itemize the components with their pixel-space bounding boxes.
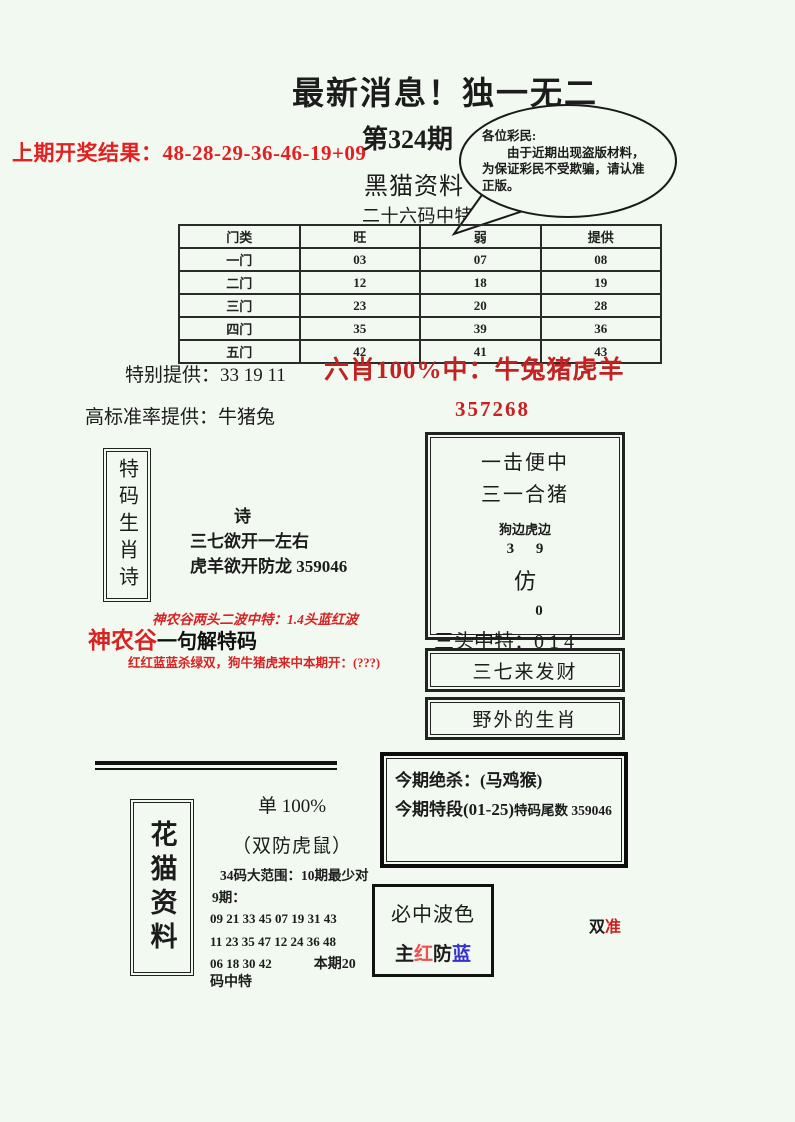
- table-cell: 39: [420, 317, 541, 340]
- segment-tail-numbers: 特码尾数 359046: [514, 803, 612, 818]
- range-note: 34码大范围：10期最少对: [220, 864, 369, 884]
- table-cell: 一门: [179, 248, 300, 271]
- fortune-box: 三七来发财: [425, 648, 625, 692]
- wild-zodiac-box: 野外的生肖: [425, 697, 625, 740]
- flyer-page: 最新消息！独一无二 上期开奖结果：48-28-29-36-46-19+09 第3…: [0, 0, 795, 1122]
- issue-number: 第324期: [362, 119, 453, 156]
- table-cell: 19: [541, 271, 662, 294]
- kill-tip-box: 今期绝杀：(马鸡猴) 今期特段(01-25)特码尾数 359046: [380, 752, 628, 868]
- kill-tip-box-inner: 今期绝杀：(马鸡猴) 今期特段(01-25)特码尾数 359046: [386, 758, 622, 862]
- table-cell: 23: [300, 294, 421, 317]
- zhongte-note: 码中特: [210, 971, 252, 991]
- hit-line-5: 仿: [514, 564, 536, 596]
- accuracy-stamp: 双准: [589, 913, 621, 937]
- table-cell: 36: [541, 317, 662, 340]
- table-cell: 18: [420, 271, 541, 294]
- table-header-cell: 提供: [541, 225, 662, 248]
- table-header-row: 门类 旺 弱 提供: [179, 225, 661, 248]
- table-cell: 12: [300, 271, 421, 294]
- poem-heading: 诗: [190, 504, 347, 529]
- one-hit-box: 一击便中 三一合猪 狗边虎边 3 9 仿 0 三头中特：0 1 4: [425, 432, 625, 640]
- table-row: 四门 35 39 36: [179, 317, 661, 340]
- table-header-cell: 门类: [179, 225, 300, 248]
- notice-body: 由于近期出现盗版材料，为保证彩民不受欺骗，请认准正版。: [482, 145, 650, 195]
- hit-line-3: 狗边虎边: [499, 519, 551, 538]
- hit-line-1: 一击便中: [481, 446, 569, 475]
- table-cell: 四门: [179, 317, 300, 340]
- segment-line: 今期特段(01-25)特码尾数 359046: [395, 795, 612, 820]
- table-cell: 28: [541, 294, 662, 317]
- notice-speech-bubble: 各位彩民: 由于近期出现盗版材料，为保证彩民不受欺骗，请认准正版。: [446, 100, 681, 240]
- table-row: 二门 12 18 19: [179, 271, 661, 294]
- zhu-char: 主: [395, 944, 414, 965]
- wave-color-box: 必中波色 主红防蓝: [372, 884, 494, 977]
- table-cell: 07: [420, 248, 541, 271]
- number-row-values: 06 18 30 42: [210, 956, 272, 971]
- fang-char: 防: [433, 944, 452, 965]
- wild-zodiac-label: 野外的生肖: [430, 702, 620, 735]
- segment-range: 今期特段(01-25): [395, 800, 514, 819]
- table-header-cell: 旺: [300, 225, 421, 248]
- wave-color-title: 必中波色: [391, 898, 475, 927]
- previous-draw-result: 上期开奖结果：48-28-29-36-46-19+09: [12, 137, 366, 167]
- hit-line-6: 0: [535, 603, 543, 620]
- table-cell: 08: [541, 248, 662, 271]
- notice-text: 各位彩民: 由于近期出现盗版材料，为保证彩民不受欺骗，请认准正版。: [482, 128, 650, 194]
- hit-line-2: 三一合猪: [481, 478, 569, 507]
- shennonggu-riddle-line: 红红蓝蓝杀绿双，狗牛猪虎来中本期开：(???): [128, 652, 380, 671]
- table-row: 三门 23 20 28: [179, 294, 661, 317]
- hong-char: 红: [414, 944, 433, 965]
- notice-salutation: 各位彩民:: [482, 128, 650, 145]
- zhun-char: 准: [605, 919, 621, 936]
- table-row: 一门 03 07 08: [179, 248, 661, 271]
- hit-line-4: 3 9: [507, 541, 544, 558]
- poem-line: 三七欲开一左右: [190, 529, 347, 554]
- wave-color-picks: 主红防蓝: [395, 939, 471, 966]
- categories-table: 门类 旺 弱 提供 一门 03 07 08 二门 12 18 19 三门 23: [178, 224, 662, 364]
- table-cell: 03: [300, 248, 421, 271]
- huamao-vertical-title: 花猫资料: [143, 820, 182, 956]
- table-cell: 20: [420, 294, 541, 317]
- table-cell: 二门: [179, 271, 300, 294]
- shuang-char: 双: [589, 919, 605, 936]
- zodiac-poem-title-box: 特码生肖诗: [103, 448, 151, 602]
- huamao-title-box: 花猫资料: [130, 799, 194, 976]
- shennonggu-title: 一句解特码: [157, 631, 257, 653]
- red-number-code: 357268: [455, 397, 530, 422]
- poem-line: 虎羊欲开防龙 359046: [190, 554, 347, 579]
- shennonggu-heading: 神农谷一句解特码: [88, 621, 257, 655]
- table-cell: 35: [300, 317, 421, 340]
- lan-char: 蓝: [452, 944, 471, 965]
- table-header-cell: 弱: [420, 225, 541, 248]
- double-guard-label: （双防虎鼠）: [232, 831, 352, 858]
- zodiac-poem-title-box-inner: 特码生肖诗: [106, 451, 148, 599]
- double-rule-divider: [95, 761, 337, 770]
- shennonggu-brand: 神农谷: [88, 628, 157, 653]
- special-provide-line: 特别提供：33 19 11: [125, 360, 286, 387]
- kill-line: 今期绝杀：(马鸡猴): [395, 766, 542, 791]
- huamao-title-box-inner: 花猫资料: [133, 802, 191, 973]
- table-cell: 三门: [179, 294, 300, 317]
- zodiac-poem-vertical-title: 特码生肖诗: [113, 458, 142, 593]
- six-zodiac-slogan: 六肖100%中：牛兔猪虎羊: [324, 350, 625, 386]
- current-issue-note: 本期20: [314, 957, 356, 972]
- odd-100-label: 单 100%: [258, 791, 326, 818]
- zodiac-poem: 诗 三七欲开一左右 虎羊欲开防龙 359046: [190, 504, 347, 579]
- periods-note: 9期：: [212, 886, 246, 906]
- high-rate-line: 高标准率提供：牛猪兔: [85, 402, 275, 429]
- one-hit-box-inner: 一击便中 三一合猪 狗边虎边 3 9 仿 0 三头中特：0 1 4: [430, 437, 620, 635]
- fortune-box-label: 三七来发财: [430, 653, 620, 687]
